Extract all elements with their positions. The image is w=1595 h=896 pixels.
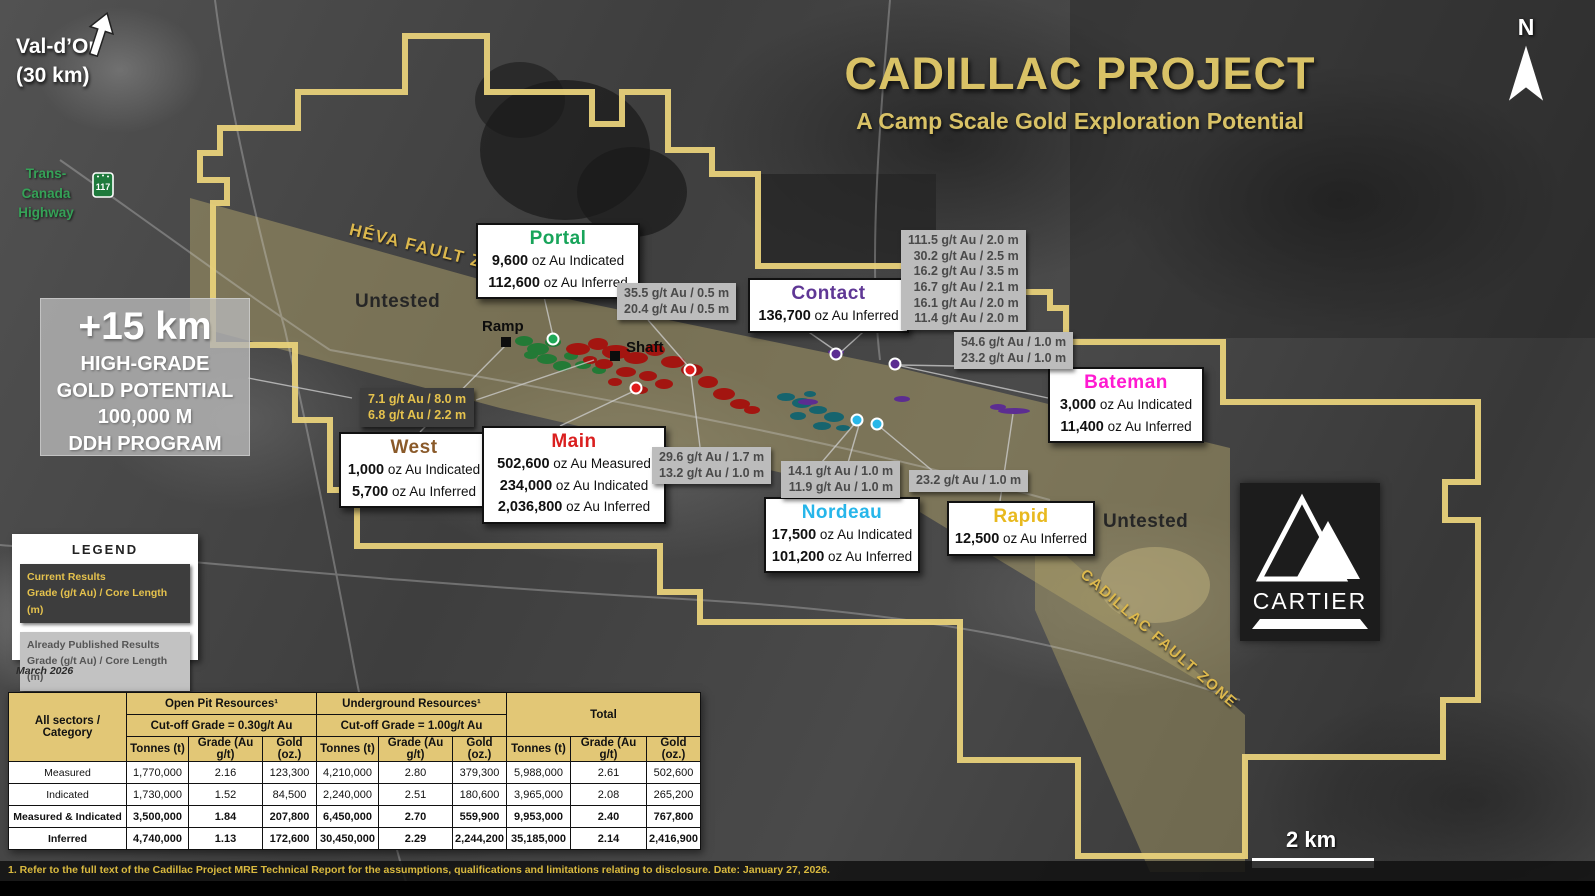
- table-row-inferred: Inferred 4,740,000 1.13 172,600 30,450,0…: [9, 828, 701, 850]
- assay-line: 16.7 g/t Au / 2.1 m: [908, 280, 1019, 296]
- nordeau-dot-2: [872, 419, 883, 430]
- deposit-name: Bateman: [1055, 372, 1197, 395]
- nordeau-dot-1: [852, 415, 863, 426]
- resource-line: 1,000 oz Au Indicated: [346, 460, 482, 482]
- cell: 2.51: [379, 784, 453, 806]
- assay-line: 35.5 g/t Au / 0.5 m: [624, 286, 729, 302]
- cell: 2.29: [379, 828, 453, 850]
- resource-line: 11,400 oz Au Inferred: [1055, 417, 1197, 439]
- published-results-tag: 111.5 g/t Au / 2.0 m 30.2 g/t Au / 2.5 m…: [901, 230, 1026, 330]
- deposit-name: Nordeau: [771, 502, 913, 525]
- north-arrow-icon: [1508, 44, 1544, 106]
- assay-line: 13.2 g/t Au / 1.0 m: [659, 466, 764, 482]
- resource-line: 3,000 oz Au Indicated: [1055, 395, 1197, 417]
- cell: 502,600: [647, 762, 701, 784]
- legend-published-results-swatch: Already Published Results Grade (g/t Au)…: [20, 632, 190, 691]
- deposit-callout-west: West 1,000 oz Au Indicated 5,700 oz Au I…: [339, 432, 489, 508]
- main-dot-1: [631, 383, 642, 394]
- cell: 2.14: [571, 828, 647, 850]
- resource-table: All sectors / Category Open Pit Resource…: [8, 692, 701, 850]
- assay-line: 14.1 g/t Au / 1.0 m: [788, 464, 893, 480]
- cartier-logo-text: CARTIER: [1253, 588, 1368, 614]
- deposit-callout-main: Main 502,600 oz Au Measured 234,000 oz A…: [482, 426, 666, 524]
- cell: 2.40: [571, 806, 647, 828]
- col-header: Tonnes (t): [127, 737, 189, 762]
- highway-name-1: Trans-Canada: [2, 164, 90, 203]
- assay-line: 7.1 g/t Au / 8.0 m: [368, 391, 466, 407]
- resource-line: 101,200 oz Au Inferred: [771, 547, 913, 569]
- cell: 4,210,000: [317, 762, 379, 784]
- cell: 1.84: [189, 806, 263, 828]
- highlight-line: DDH PROGRAM: [41, 431, 249, 458]
- resource-line: 9,600 oz Au Indicated: [483, 251, 633, 273]
- map-date: March 2026: [16, 665, 73, 677]
- cell: 2.61: [571, 762, 647, 784]
- assay-line: 6.8 g/t Au / 2.2 m: [368, 407, 466, 423]
- shaft-marker: [610, 351, 620, 361]
- legend-current-results-swatch: Current Results Grade (g/t Au) / Core Le…: [20, 564, 190, 623]
- col-header: Tonnes (t): [317, 737, 379, 762]
- cell: 1.13: [189, 828, 263, 850]
- cell: 9,953,000: [507, 806, 571, 828]
- current-results-tag: 7.1 g/t Au / 8.0 m 6.8 g/t Au / 2.2 m: [360, 388, 474, 427]
- cell: 207,800: [263, 806, 317, 828]
- published-results-tag: 35.5 g/t Au / 0.5 m 20.4 g/t Au / 0.5 m: [617, 283, 736, 320]
- col-header: Grade (Au g/t): [189, 737, 263, 762]
- col-header: Grade (Au g/t): [379, 737, 453, 762]
- assay-line: 11.9 g/t Au / 1.0 m: [788, 480, 893, 496]
- col-header: Gold (oz.): [453, 737, 507, 762]
- col-header: Gold (oz.): [263, 737, 317, 762]
- cell: 6,450,000: [317, 806, 379, 828]
- resource-line: 12,500 oz Au Inferred: [954, 529, 1088, 551]
- shaft-label: Shaft: [626, 339, 664, 356]
- table-row-indicated: Indicated 1,730,000 1.52 84,500 2,240,00…: [9, 784, 701, 806]
- cell: 172,600: [263, 828, 317, 850]
- assay-line: 23.2 g/t Au / 1.0 m: [961, 351, 1066, 367]
- exploration-highlight-box: +15 km HIGH-GRADE GOLD POTENTIAL 100,000…: [40, 298, 250, 456]
- deposit-name: Rapid: [954, 506, 1088, 529]
- table-group-underground: Underground Resources¹: [317, 693, 507, 715]
- bottom-black-strip: [0, 881, 1595, 896]
- page-subtitle: A Camp Scale Gold Exploration Potential: [805, 108, 1355, 135]
- legend-current-sub: Grade (g/t Au) / Core Length (m): [27, 585, 183, 618]
- deposit-name: West: [346, 437, 482, 460]
- cell: 2.70: [379, 806, 453, 828]
- deposit-callout-contact: Contact 136,700 oz Au Inferred: [748, 278, 909, 333]
- cell: 180,600: [453, 784, 507, 806]
- cartier-logo: CARTIER: [1240, 483, 1380, 641]
- cartier-logo-graphic: CARTIER: [1240, 483, 1380, 641]
- valdor-arrow-icon: [78, 10, 122, 60]
- north-label: N: [1506, 14, 1546, 41]
- page-title: CADILLAC PROJECT: [830, 48, 1330, 100]
- col-header: Gold (oz.): [647, 737, 701, 762]
- cell: 4,740,000: [127, 828, 189, 850]
- assay-line: 23.2 g/t Au / 1.0 m: [916, 473, 1021, 489]
- table-corner-header: All sectors / Category: [9, 693, 127, 762]
- highlight-line: 100,000 M: [41, 404, 249, 431]
- cell: 3,500,000: [127, 806, 189, 828]
- assay-line: 30.2 g/t Au / 2.5 m: [908, 249, 1019, 265]
- cell: 2,244,200: [453, 828, 507, 850]
- row-label: Measured: [9, 762, 127, 784]
- deposit-name: Contact: [755, 283, 902, 306]
- portal-dot: [548, 334, 559, 345]
- untested-west-label: Untested: [355, 291, 440, 313]
- cell: 2,416,900: [647, 828, 701, 850]
- footnote-text: 1. Refer to the full text of the Cadilla…: [8, 864, 830, 876]
- deposit-callout-nordeau: Nordeau 17,500 oz Au Indicated 101,200 o…: [764, 497, 920, 573]
- cell: 265,200: [647, 784, 701, 806]
- deposit-name: Main: [489, 431, 659, 454]
- assay-line: 16.2 g/t Au / 3.5 m: [908, 264, 1019, 280]
- table-group-openpit: Open Pit Resources¹: [127, 693, 317, 715]
- col-header: Tonnes (t): [507, 737, 571, 762]
- assay-line: 54.6 g/t Au / 1.0 m: [961, 335, 1066, 351]
- resource-line: 234,000 oz Au Indicated: [489, 476, 659, 498]
- table-row-measured-indicated: Measured & Indicated 3,500,000 1.84 207,…: [9, 806, 701, 828]
- cell: 2.80: [379, 762, 453, 784]
- cell: 1,770,000: [127, 762, 189, 784]
- cell: 84,500: [263, 784, 317, 806]
- row-label: Measured & Indicated: [9, 806, 127, 828]
- published-results-tag: 54.6 g/t Au / 1.0 m 23.2 g/t Au / 1.0 m: [954, 332, 1073, 369]
- cell: 1,730,000: [127, 784, 189, 806]
- highway-117-shield-icon: 117: [92, 170, 114, 198]
- legend-published-title: Already Published Results: [27, 637, 183, 653]
- cell: 559,900: [453, 806, 507, 828]
- row-label: Indicated: [9, 784, 127, 806]
- highlight-headline: +15 km: [41, 304, 249, 351]
- row-label: Inferred: [9, 828, 127, 850]
- assay-line: 111.5 g/t Au / 2.0 m: [908, 233, 1019, 249]
- cell: 2.08: [571, 784, 647, 806]
- published-results-tag: 23.2 g/t Au / 1.0 m: [909, 470, 1028, 492]
- resource-line: 2,036,800 oz Au Inferred: [489, 497, 659, 519]
- assay-line: 11.4 g/t Au / 2.0 m: [908, 311, 1019, 327]
- ramp-label: Ramp: [482, 318, 524, 335]
- cell: 379,300: [453, 762, 507, 784]
- published-results-tag: 29.6 g/t Au / 1.7 m 13.2 g/t Au / 1.0 m: [652, 447, 771, 484]
- highlight-line: HIGH-GRADE: [41, 351, 249, 378]
- cell: 5,988,000: [507, 762, 571, 784]
- col-header: Grade (Au g/t): [571, 737, 647, 762]
- table-group-total: Total: [507, 693, 701, 737]
- resource-line: 112,600 oz Au Inferred: [483, 273, 633, 295]
- main-dot-2: [685, 365, 696, 376]
- contact-dot: [831, 349, 842, 360]
- map-canvas: CADILLAC PROJECT A Camp Scale Gold Explo…: [0, 0, 1595, 896]
- table-cutoff-underground: Cut-off Grade = 1.00g/t Au: [317, 715, 507, 737]
- cell: 35,185,000: [507, 828, 571, 850]
- highway-label: Trans-Canada Highway: [2, 164, 90, 223]
- highway-number: 117: [96, 182, 111, 192]
- assay-line: 29.6 g/t Au / 1.7 m: [659, 450, 764, 466]
- ramp-marker: [501, 337, 511, 347]
- table-cutoff-openpit: Cut-off Grade = 0.30g/t Au: [127, 715, 317, 737]
- assay-line: 16.1 g/t Au / 2.0 m: [908, 296, 1019, 312]
- deposit-name: Portal: [483, 228, 633, 251]
- bateman-dot: [890, 359, 901, 370]
- untested-east-label: Untested: [1103, 511, 1188, 533]
- legend-title: LEGEND: [12, 542, 198, 557]
- cell: 3,965,000: [507, 784, 571, 806]
- assay-line: 20.4 g/t Au / 0.5 m: [624, 302, 729, 318]
- resource-line: 17,500 oz Au Indicated: [771, 525, 913, 547]
- cell: 2.16: [189, 762, 263, 784]
- deposit-callout-rapid: Rapid 12,500 oz Au Inferred: [947, 501, 1095, 556]
- cell: 1.52: [189, 784, 263, 806]
- cell: 123,300: [263, 762, 317, 784]
- highway-name-2: Highway: [2, 203, 90, 223]
- scalebar-label: 2 km: [1286, 827, 1336, 853]
- cell: 767,800: [647, 806, 701, 828]
- deposit-callout-portal: Portal 9,600 oz Au Indicated 112,600 oz …: [476, 223, 640, 299]
- valdor-distance: (30 km): [16, 61, 97, 90]
- table-row-measured: Measured 1,770,000 2.16 123,300 4,210,00…: [9, 762, 701, 784]
- cell: 30,450,000: [317, 828, 379, 850]
- resource-line: 5,700 oz Au Inferred: [346, 482, 482, 504]
- legend-box: LEGEND Current Results Grade (g/t Au) / …: [12, 534, 198, 660]
- published-results-tag: 14.1 g/t Au / 1.0 m 11.9 g/t Au / 1.0 m: [781, 461, 900, 498]
- resource-line: 502,600 oz Au Measured: [489, 454, 659, 476]
- cell: 2,240,000: [317, 784, 379, 806]
- resource-line: 136,700 oz Au Inferred: [755, 306, 902, 328]
- highlight-line: GOLD POTENTIAL: [41, 378, 249, 405]
- legend-current-title: Current Results: [27, 569, 183, 585]
- lake: [475, 62, 687, 237]
- deposit-callout-bateman: Bateman 3,000 oz Au Indicated 11,400 oz …: [1048, 367, 1204, 443]
